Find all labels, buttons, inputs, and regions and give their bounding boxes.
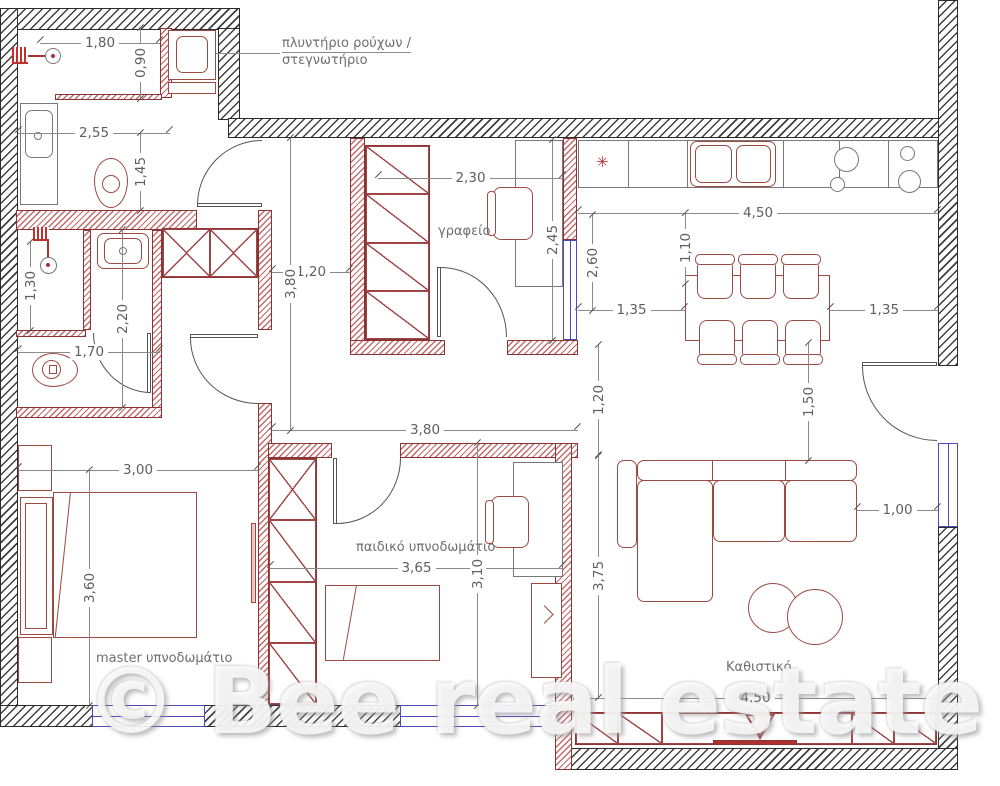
counter-section (629, 141, 688, 187)
dim-label: 3,10 (470, 555, 486, 593)
floor-plan: πλυντήριο ρούχων / στεγνωτήριο γραφείο ✳ (0, 0, 1000, 786)
sofa-back (637, 460, 857, 481)
dim-dining-left: 1,35 (578, 310, 685, 311)
dim-label: 0,90 (133, 44, 149, 82)
utility-label-line2: στεγνωτήριο (282, 53, 411, 68)
door-entrance (862, 366, 937, 441)
dim-label: 1,50 (801, 382, 817, 420)
dim-label: 3,75 (591, 557, 607, 595)
dim-label: 3,80 (283, 265, 299, 303)
utility-leader-line (216, 53, 280, 54)
wall-top-main (228, 118, 958, 138)
wardrobe-cell (269, 459, 316, 520)
stove-burner-small-1 (900, 146, 915, 161)
dim-label: 3,80 (406, 422, 444, 438)
dim-label: 1,45 (133, 152, 149, 190)
wardrobe-cell (366, 146, 429, 194)
washing-machine-drum (176, 36, 208, 73)
sofa-seat (713, 480, 785, 542)
window-office (563, 240, 577, 340)
dim-bath1-depth: 1,45 (140, 133, 141, 210)
office-wardrobe (365, 145, 430, 340)
dining-chair (740, 259, 776, 299)
stove-burner-small-2 (830, 177, 845, 192)
dim-label: 3,60 (82, 568, 98, 606)
dim-hall-to-living: 3,80 (272, 430, 578, 431)
dim-bath2-depth: 2,20 (122, 230, 123, 407)
dim-label: 2,30 (451, 170, 489, 186)
sofa-back-divider (785, 461, 786, 480)
dim-label: 3,65 (397, 560, 435, 576)
wardrobe-cell (210, 229, 257, 277)
dining-chair (699, 320, 735, 360)
wall-right-upper (938, 0, 958, 366)
wall-office-right (563, 138, 577, 240)
nightstand (18, 637, 52, 683)
door-kids-bedroom-leaf (333, 458, 337, 524)
door-bath1-leaf (197, 203, 262, 207)
kitchen-sink-basin-left (695, 145, 732, 183)
wall-office-left (350, 138, 365, 355)
shower-head-icon (12, 45, 64, 67)
sliding-door-master (251, 523, 256, 603)
sofa-chaise (637, 480, 713, 602)
bath1-toilet-bowl (102, 175, 120, 193)
dim-wc-width: 1,70 (18, 352, 160, 353)
office-label: γραφείο (438, 224, 490, 239)
dim-living-gap: 1,20 (598, 345, 599, 455)
watermark: © Bee real estate (85, 648, 982, 755)
dim-dining-right: 1,35 (830, 310, 938, 311)
dim-label: 3,00 (119, 462, 157, 478)
wall-bath2-right (152, 230, 162, 418)
dim-kitchen-width: 4,50 (578, 213, 938, 214)
office-chair (493, 187, 533, 240)
dim-label: 1,70 (70, 344, 108, 360)
utility-label-line1: πλυντήριο ρούχων / (282, 36, 411, 53)
door-bath2-leaf (147, 333, 151, 393)
master-pillow (25, 503, 47, 629)
wall-kids-top-left (268, 443, 332, 458)
dim-office-depth: 2,45 (552, 140, 553, 340)
wardrobe-cell (366, 194, 429, 242)
stove-burner-large-2 (898, 170, 921, 193)
wall-utility-right (218, 28, 240, 120)
wall-bath2-bottom (16, 407, 162, 418)
sofa-back-divider (712, 461, 713, 480)
dining-chair (697, 259, 733, 299)
dining-chair (783, 259, 819, 299)
bath2-toilet-flush (49, 365, 57, 374)
wall-left (0, 8, 18, 727)
wall-top-left (0, 8, 240, 30)
dim-counter-offset: 1,10 (685, 213, 686, 283)
coffee-table-large (787, 589, 843, 645)
dim-label: 2,60 (585, 243, 601, 281)
door-office-leaf (437, 267, 441, 337)
dim-dining-clearance: 2,60 (592, 215, 593, 310)
washing-machine-panel (168, 82, 216, 94)
sofa-armrest (617, 460, 637, 548)
dim-label: 1,35 (612, 302, 650, 318)
dim-master-width: 3,00 (18, 470, 258, 471)
sofa-seat (785, 480, 857, 542)
door-kids-bedroom (337, 458, 401, 524)
dim-label: 1,35 (865, 302, 903, 318)
wardrobe-cell (269, 520, 316, 581)
wardrobe-cell (269, 582, 316, 643)
dim-label: 1,10 (678, 229, 694, 267)
dim-utility-depth: 0,90 (140, 28, 141, 98)
wardrobe-cell (366, 243, 429, 291)
dim-hall-length: 3,80 (290, 138, 291, 430)
kids-bedroom-label: παιδικό υπνοδωμάτιο (356, 540, 495, 555)
bath2-faucet (119, 247, 127, 255)
door-office (441, 267, 507, 337)
dim-kids-width: 3,65 (270, 568, 563, 569)
door-bath1 (197, 140, 262, 205)
dining-chair (785, 320, 821, 360)
dim-shower2-depth: 1,30 (30, 242, 31, 330)
dim-label: 1,20 (591, 381, 607, 419)
master-bed (53, 492, 197, 638)
dim-label: 1,80 (81, 35, 119, 51)
kids-chair (491, 496, 529, 548)
stove-burner-large-1 (834, 147, 859, 172)
hall-wardrobe (162, 228, 258, 278)
wall-shower1-screen (55, 94, 162, 100)
dim-sofa-clearance: 1,00 (857, 510, 938, 511)
door-master-bedroom-leaf (190, 334, 258, 338)
wall-bath2-divider (83, 230, 91, 330)
utility-room-label: πλυντήριο ρούχων / στεγνωτήριο (282, 36, 411, 68)
dim-label: 1,00 (878, 502, 916, 518)
wall-kids-top-right (400, 443, 578, 458)
wardrobe-cell (163, 229, 210, 277)
door-master-bedroom (190, 338, 258, 404)
dim-label: 4,50 (739, 205, 777, 221)
dim-office-width: 2,30 (378, 178, 563, 179)
wardrobe-cell (366, 291, 429, 339)
dim-label: 2,55 (75, 125, 113, 141)
window-living-room (938, 443, 958, 527)
dining-chair (742, 320, 778, 360)
wall-office-bottom-left (350, 340, 445, 355)
wall-office-bottom-right (507, 340, 578, 355)
dim-label: 2,20 (115, 299, 131, 337)
kitchen-marker-icon: ✳ (596, 153, 609, 171)
dim-bath1-inner-width: 2,55 (18, 133, 170, 134)
dim-label: 1,30 (23, 267, 39, 305)
door-entrance-leaf (862, 362, 937, 366)
dim-entry-clearance: 1,50 (808, 343, 809, 460)
dim-label: 2,45 (545, 221, 561, 259)
nightstand (18, 445, 52, 491)
kitchen-sink-basin-right (736, 145, 771, 183)
